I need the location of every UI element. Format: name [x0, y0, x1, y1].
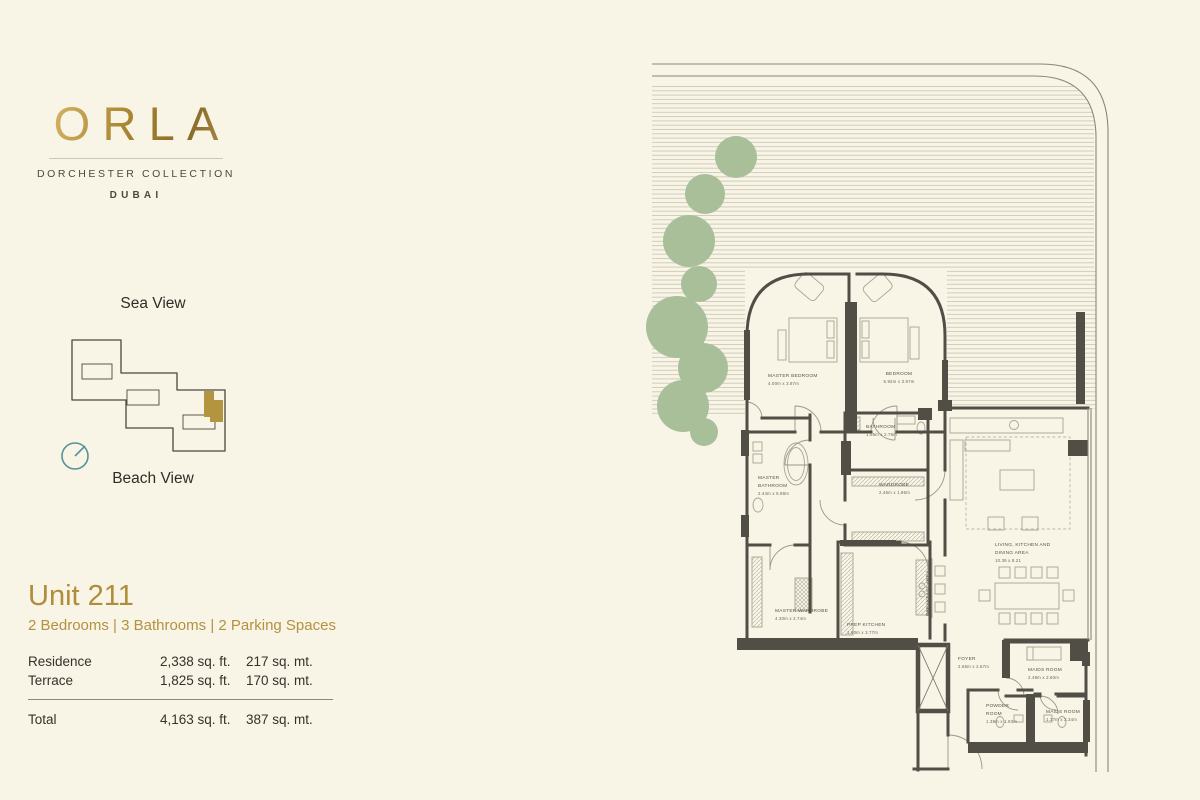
- label-powder-room: POWDER: [986, 703, 1009, 709]
- svg-text:5.92m x 3.97m: 5.92m x 3.97m: [883, 379, 914, 384]
- label-maids-room-2: MAIDS ROOM: [1046, 709, 1080, 715]
- svg-text:BATHROOM: BATHROOM: [758, 483, 787, 489]
- svg-text:2.49m x 2.60m: 2.49m x 2.60m: [1028, 675, 1059, 680]
- brochure-page: ORLA DORCHESTER COLLECTION DUBAI Sea Vie…: [0, 0, 1200, 800]
- label-prep-kitchen: PREP KITCHEN: [847, 622, 886, 628]
- svg-text:ROOM: ROOM: [986, 711, 1002, 717]
- label-maids-room-1: MAIDS ROOM: [1028, 667, 1062, 673]
- elevator-shaft: [918, 645, 948, 711]
- label-master-bedroom: MASTER BEDROOM: [768, 373, 818, 379]
- svg-text:4.30m x 2.74m: 4.30m x 2.74m: [775, 616, 806, 621]
- label-breakfast-area: BREAKFAST AREA: [925, 570, 931, 616]
- svg-text:2.46m x 1.86m: 2.46m x 1.86m: [879, 490, 910, 495]
- svg-text:1.95m x 2.78m: 1.95m x 2.78m: [866, 432, 897, 437]
- glass-wall: [1088, 408, 1091, 640]
- label-bedroom: BEDROOM: [886, 371, 913, 377]
- label-master-wardrobe: MASTER WARDROBE: [775, 608, 828, 614]
- svg-text:1.60m x 3.77m: 1.60m x 3.77m: [847, 630, 878, 635]
- label-foyer: FOYER: [958, 656, 976, 662]
- door-arcs: [746, 402, 1058, 769]
- svg-text:2.65m x 2.67m: 2.65m x 2.67m: [958, 664, 989, 669]
- svg-text:DINING AREA: DINING AREA: [995, 550, 1029, 556]
- label-bathroom: BATHROOM: [866, 424, 895, 430]
- label-wardrobe: WARDROBE: [879, 482, 909, 488]
- svg-text:1.38m x 1.93m: 1.38m x 1.93m: [986, 719, 1017, 724]
- floorplan: MASTER BEDROOM 4.00m x 3.97m BEDROOM 5.9…: [0, 0, 1200, 800]
- svg-text:2.44m x 5.98m: 2.44m x 5.98m: [758, 491, 789, 496]
- svg-text:4.00m x 3.97m: 4.00m x 3.97m: [768, 381, 799, 386]
- svg-text:1.37m x 2.34m: 1.37m x 2.34m: [1046, 717, 1077, 722]
- label-master-bathroom: MASTER: [758, 475, 780, 481]
- svg-text:10.39 x 8.21: 10.39 x 8.21: [995, 558, 1021, 563]
- label-living: LIVING, KITCHEN AND: [995, 542, 1051, 548]
